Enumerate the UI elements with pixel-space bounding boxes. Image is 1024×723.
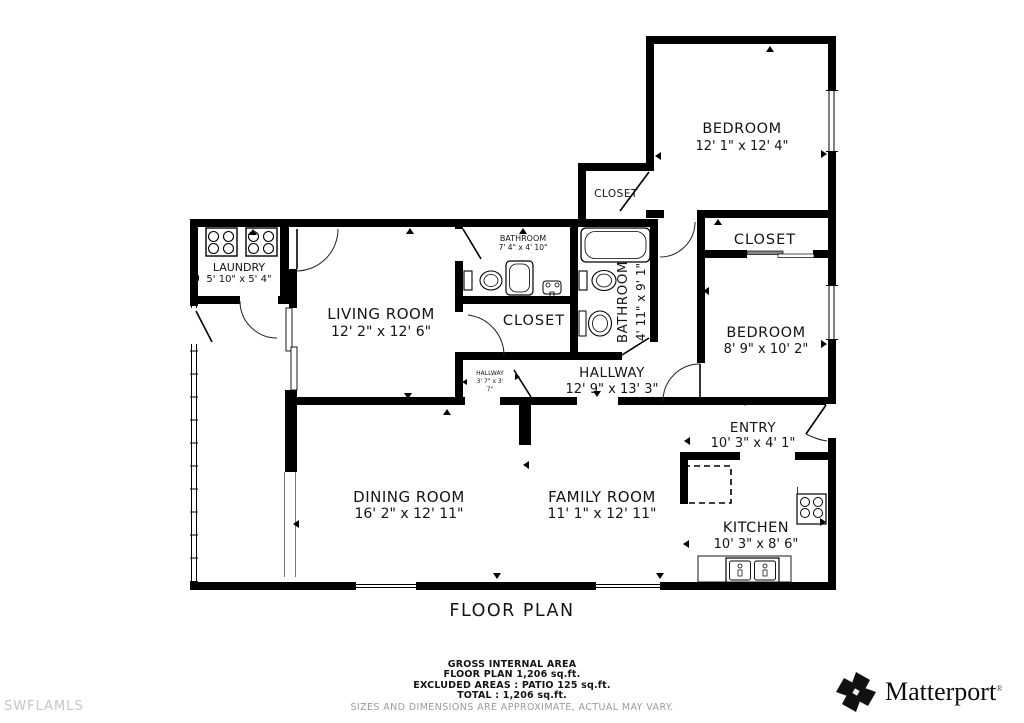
room-label-closet-top: CLOSET <box>594 188 638 200</box>
front-door-leaf <box>806 405 826 434</box>
room-dims-bedroom1: 12' 1" x 12' 4" <box>696 139 789 154</box>
dryer-icon <box>246 228 277 256</box>
room-label-bathroom-main: BATHROOM <box>615 261 631 343</box>
closet-mid-door-arc <box>468 315 504 356</box>
floor-plan-drawing: BEDROOM 12' 1" x 12' 4" CLOSET CLOSET BE… <box>0 0 1024 723</box>
room-label-bedroom1: BEDROOM <box>702 121 781 137</box>
room-label-kitchen: KITCHEN <box>723 520 789 536</box>
matterport-icon <box>834 669 878 715</box>
room-dims-dining: 16' 2" x 12' 11" <box>354 506 463 522</box>
room-dims-kitchen: 10' 3" x 8' 6" <box>714 537 799 552</box>
stove-icon <box>797 487 826 524</box>
window <box>595 582 661 590</box>
room-labels: BEDROOM 12' 1" x 12' 4" CLOSET CLOSET BE… <box>206 121 808 552</box>
window <box>355 582 417 590</box>
room-dims-living: 12' 2" x 12' 6" <box>331 324 431 340</box>
toilet-icon <box>464 271 502 290</box>
mls-watermark: SWFLAMLS <box>4 699 84 714</box>
brand-wordmark: Matterport® <box>885 677 1002 707</box>
room-dims-hallway-small-1: 3' 7" x 3' <box>477 378 504 385</box>
room-label-family: FAMILY ROOM <box>548 488 656 506</box>
room-label-closet-right: CLOSET <box>734 232 796 248</box>
room-dims-hallway-small-2: 7" <box>487 386 494 393</box>
room-label-hallway-small: HALLWAY <box>476 370 504 377</box>
sliding-door <box>747 250 814 258</box>
room-dims-laundry: 5' 10" x 5' 4" <box>206 274 271 285</box>
sink-icon <box>543 281 561 297</box>
window <box>826 285 838 340</box>
room-dims-family: 11' 1" x 12' 11" <box>547 506 656 522</box>
room-label-laundry: LAUNDRY <box>213 261 266 274</box>
kitchen-sink-icon <box>698 556 791 586</box>
front-door-arc <box>806 434 827 441</box>
room-dims-hallway: 12' 9" x 13' 3" <box>566 382 659 397</box>
laundry-door-arc <box>240 301 277 338</box>
washer-icon <box>206 228 237 256</box>
bathtub-icon <box>581 228 650 262</box>
room-label-closet-mid: CLOSET <box>503 313 565 329</box>
room-label-entry: ENTRY <box>730 420 776 436</box>
brand-logo: Matterport® <box>834 666 1020 718</box>
room-label-dining: DINING ROOM <box>353 488 465 506</box>
room-dims-bathroom-small: 7' 4" x 4' 10" <box>499 243 548 252</box>
room-label-living: LIVING ROOM <box>327 305 435 323</box>
brand-name: Matterport <box>885 677 996 706</box>
bedroom2-door-arc <box>663 364 700 401</box>
patio-door-leaf <box>196 311 212 342</box>
room-dims-bathroom-main: 4' 11" x 9' 1" <box>634 263 648 341</box>
plan-title: FLOOR PLAN <box>449 601 574 621</box>
room-label-bathroom-small: BATHROOM <box>500 234 546 243</box>
living-door-arc <box>297 229 338 271</box>
patio-screen-wall <box>190 305 198 582</box>
sink-icon <box>579 311 612 336</box>
toilet-icon <box>579 271 616 291</box>
room-dims-bedroom2: 8' 9" x 10' 2" <box>724 342 809 357</box>
hallway-small-door-leaf <box>514 370 531 397</box>
bedroom1-door-arc <box>660 222 695 257</box>
sliding-door <box>286 308 297 390</box>
room-label-hallway: HALLWAY <box>579 365 645 381</box>
brand-trademark: ® <box>996 684 1002 693</box>
floor-plan-page: BEDROOM 12' 1" x 12' 4" CLOSET CLOSET BE… <box>0 0 1024 723</box>
front-door-opening <box>826 404 838 438</box>
shower-icon <box>506 261 533 295</box>
room-dims-entry: 10' 3" x 4' 1" <box>711 436 796 451</box>
refrigerator-outline <box>684 466 731 503</box>
window <box>826 90 838 152</box>
room-label-bedroom2: BEDROOM <box>726 325 805 341</box>
bathroom-small-door-leaf <box>463 229 481 259</box>
